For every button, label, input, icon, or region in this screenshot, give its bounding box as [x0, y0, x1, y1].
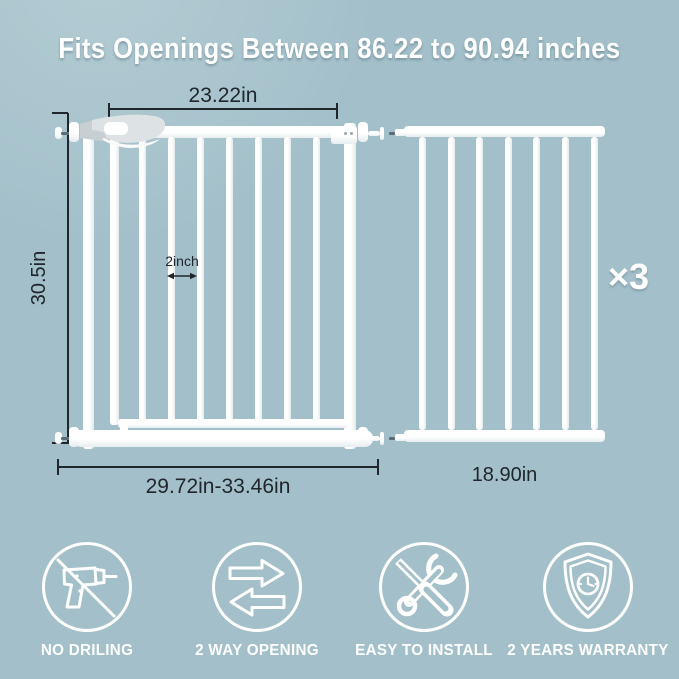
feature-no-drilling: NO DRILING [2, 540, 172, 660]
headline: Fits Openings Between 86.22 to 90.94 inc… [41, 33, 639, 66]
no-drilling-icon [40, 540, 134, 634]
bottom-width-dimension-tick [57, 459, 59, 475]
extension-bar [562, 137, 569, 430]
spindle-disc [69, 122, 79, 142]
bar-gap-arrow-icon [167, 271, 197, 281]
two-way-opening-icon [210, 540, 304, 634]
gate-latch-handle [78, 110, 174, 152]
spindle-disc [69, 427, 79, 447]
top-width-dimension-label: 23.22in [108, 84, 338, 108]
hinge-screw-dot [344, 132, 347, 135]
gate-bar [313, 137, 320, 425]
gate-bar [226, 137, 233, 425]
spindle-rod [368, 436, 380, 441]
feature-label: NO DRILING [6, 642, 168, 660]
spindle-cap [380, 432, 384, 445]
bottom-width-dimension-line [57, 466, 379, 468]
bar-gap-label: 2inch [156, 253, 208, 269]
spindle-rod [368, 131, 380, 136]
gate-bar [284, 137, 291, 425]
extension-bottom-rail [404, 430, 605, 442]
extension-top-rail [404, 126, 605, 137]
gate-bar [255, 137, 262, 425]
height-dimension-tick [52, 112, 68, 114]
gate-left-post [83, 123, 94, 449]
baby-gate-infographic: Fits Openings Between 86.22 to 90.94 inc… [0, 0, 679, 679]
feature-warranty: 2 YEARS WARRANTY [503, 540, 673, 660]
warranty-shield-icon [541, 540, 635, 634]
feature-two-way-opening: 2 WAY OPENING [172, 540, 342, 660]
spindle-disc [358, 427, 368, 447]
top-width-dimension-tick [336, 103, 338, 119]
height-dimension-label: 30.5in [28, 213, 50, 343]
extension-quantity-label: ×3 [608, 256, 649, 298]
easy-install-icon [377, 540, 471, 634]
spindle-cap [380, 127, 384, 140]
feature-label: 2 YEARS WARRANTY [507, 642, 669, 660]
gate-bar [168, 137, 175, 425]
extension-bar [591, 137, 598, 430]
extension-bar [448, 137, 455, 430]
feature-label: EASY TO INSTALL [343, 642, 505, 660]
feature-label: 2 WAY OPENING [176, 642, 338, 660]
spindle-disc [358, 122, 368, 142]
gate-bottom-rail [73, 430, 373, 447]
bottom-width-dimension-label: 29.72in-33.46in [57, 475, 379, 499]
bottom-width-dimension-tick [377, 459, 379, 475]
extension-bar [419, 137, 426, 430]
height-dimension-line [67, 113, 69, 444]
gate-door-stile [110, 133, 119, 425]
gate-bar [197, 137, 204, 425]
gate-bar [139, 137, 146, 425]
extension-bar [505, 137, 512, 430]
extension-width-label: 18.90in [404, 464, 605, 487]
extension-bar [533, 137, 540, 430]
hinge-screw-dot [350, 132, 353, 135]
feature-easy-install: EASY TO INSTALL [339, 540, 509, 660]
gate-door-bottom-rail [118, 419, 348, 428]
gate-hinge-bracket [331, 126, 357, 144]
extension-bar [476, 137, 483, 430]
gate-right-post [344, 123, 356, 449]
